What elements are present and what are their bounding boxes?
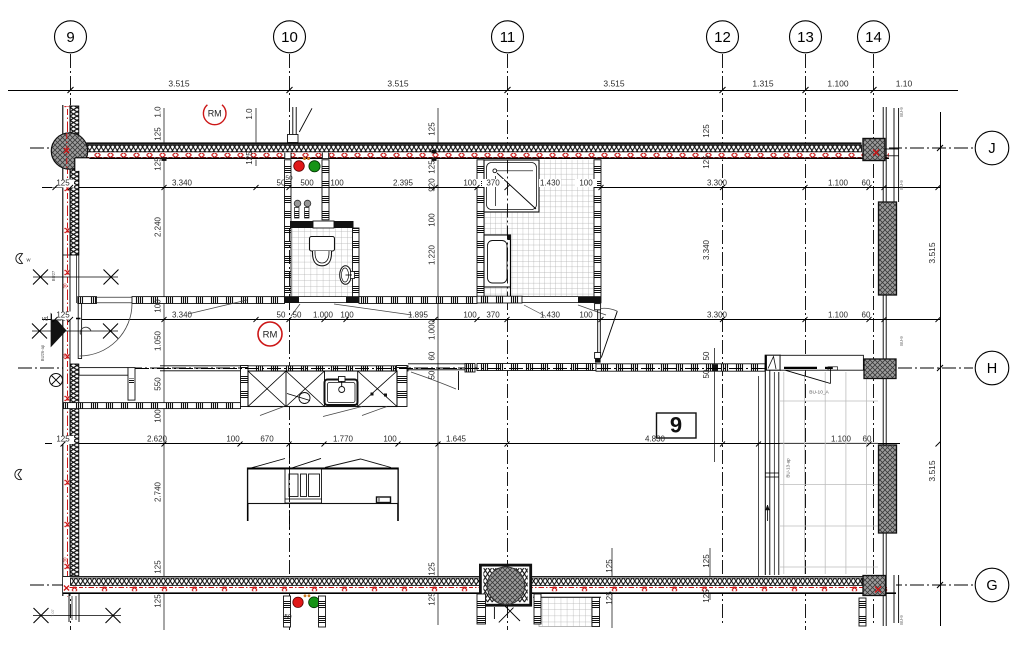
svg-text:100: 100 (579, 311, 593, 320)
svg-text:w: w (26, 258, 31, 264)
svg-text:3.340: 3.340 (702, 239, 711, 260)
svg-text:670: 670 (260, 435, 274, 444)
svg-text:100: 100 (383, 435, 397, 444)
svg-text:100: 100 (579, 179, 593, 188)
svg-text:50: 50 (293, 311, 302, 320)
svg-text:3.515: 3.515 (927, 242, 937, 264)
svg-text:9: 9 (66, 29, 74, 46)
svg-text:370: 370 (486, 311, 500, 320)
svg-text:125: 125 (56, 435, 70, 444)
svg-text:RM: RM (263, 330, 278, 341)
svg-text:60: 60 (428, 351, 437, 360)
svg-text:9: 9 (670, 413, 682, 438)
svg-text:3.340: 3.340 (172, 311, 193, 320)
svg-text:125: 125 (245, 151, 254, 165)
svg-text:125: 125 (605, 559, 614, 573)
svg-text:7.07: 7.07 (51, 609, 55, 616)
svg-text:370: 370 (486, 179, 500, 188)
svg-text:125: 125 (428, 562, 437, 576)
svg-text:11: 11 (500, 29, 516, 46)
svg-text:3.515: 3.515 (603, 79, 625, 89)
svg-text:BU27: BU27 (51, 270, 56, 281)
svg-text:100: 100 (330, 179, 344, 188)
svg-text:vd: vd (42, 317, 48, 323)
svg-text:BU-9: BU-9 (899, 336, 904, 346)
svg-text:550: 550 (154, 377, 163, 391)
svg-text:50: 50 (702, 351, 711, 360)
svg-text:1.050: 1.050 (154, 330, 163, 351)
svg-text:125: 125 (56, 179, 70, 188)
svg-text:1.0: 1.0 (245, 108, 254, 120)
svg-text:125: 125 (428, 160, 437, 174)
svg-text:1.100: 1.100 (828, 179, 849, 188)
svg-text:125: 125 (702, 155, 711, 169)
svg-text:4.830: 4.830 (645, 435, 666, 444)
svg-text:100: 100 (154, 299, 163, 313)
svg-text:3.515: 3.515 (387, 79, 409, 89)
svg-text:100: 100 (463, 179, 477, 188)
svg-text:1.100: 1.100 (828, 311, 849, 320)
svg-text:920: 920 (428, 178, 437, 192)
svg-text:125: 125 (428, 122, 437, 136)
svg-text:100: 100 (463, 311, 477, 320)
svg-text:125: 125 (154, 594, 163, 608)
svg-text:125: 125 (702, 124, 711, 138)
svg-text:1.895: 1.895 (408, 311, 429, 320)
svg-text:2.620: 2.620 (147, 435, 168, 444)
svg-text:1.000: 1.000 (313, 311, 334, 320)
svg-text:125: 125 (605, 591, 614, 605)
svg-text:2.395: 2.395 (393, 179, 414, 188)
svg-text:10: 10 (281, 29, 298, 46)
svg-text:100: 100 (226, 435, 240, 444)
svg-text:30: 30 (63, 557, 68, 563)
svg-text:BU-10_A: BU-10_A (809, 390, 829, 396)
svg-text:G: G (986, 578, 997, 594)
svg-text:125: 125 (702, 589, 711, 603)
svg-text:50: 50 (428, 370, 437, 379)
svg-text:30: 30 (63, 353, 68, 359)
svg-text:100: 100 (154, 409, 163, 423)
svg-text:1.0: 1.0 (154, 106, 163, 118)
svg-text:1.100: 1.100 (827, 79, 849, 89)
svg-text:2.240: 2.240 (154, 216, 163, 237)
svg-text:125: 125 (56, 311, 70, 320)
svg-text:100: 100 (428, 213, 437, 227)
svg-text:BU-9: BU-9 (899, 180, 904, 190)
svg-text:60: 60 (862, 311, 871, 320)
svg-text:50: 50 (702, 369, 711, 378)
svg-text:14: 14 (865, 29, 882, 46)
svg-text:BU-9: BU-9 (899, 107, 904, 117)
svg-text:1.430: 1.430 (540, 179, 561, 188)
svg-text:125: 125 (154, 157, 163, 171)
svg-text:13: 13 (797, 29, 814, 46)
svg-text:1.220: 1.220 (428, 244, 437, 265)
svg-text:RM: RM (208, 109, 222, 119)
svg-text:1.100: 1.100 (831, 435, 852, 444)
svg-text:12: 12 (714, 29, 731, 46)
svg-text:30: 30 (63, 283, 68, 289)
svg-text:3.515: 3.515 (927, 460, 937, 482)
svg-text:1.645: 1.645 (446, 435, 467, 444)
svg-text:125: 125 (702, 554, 711, 568)
svg-text:1.10: 1.10 (896, 79, 913, 89)
svg-text:50: 50 (285, 175, 293, 182)
svg-text:BU-13-ap: BU-13-ap (786, 458, 791, 478)
svg-text:1.315: 1.315 (752, 79, 774, 89)
svg-text:125: 125 (428, 592, 437, 606)
svg-text:2.740: 2.740 (154, 481, 163, 502)
svg-text:H: H (987, 361, 997, 377)
svg-text:1.000: 1.000 (428, 319, 437, 340)
svg-text:BU-9: BU-9 (899, 615, 904, 625)
svg-text:125: 125 (154, 560, 163, 574)
svg-text:50: 50 (284, 614, 292, 621)
svg-text:50: 50 (277, 311, 286, 320)
svg-text:BU26-ap: BU26-ap (40, 344, 45, 361)
svg-text:3.340: 3.340 (172, 179, 193, 188)
svg-text:125: 125 (154, 127, 163, 141)
svg-text:500: 500 (300, 179, 314, 188)
svg-text:3.515: 3.515 (168, 79, 190, 89)
svg-text:1.770: 1.770 (333, 435, 354, 444)
svg-text:60: 60 (862, 179, 871, 188)
svg-text:1.430: 1.430 (540, 311, 561, 320)
svg-text:J: J (988, 141, 995, 157)
